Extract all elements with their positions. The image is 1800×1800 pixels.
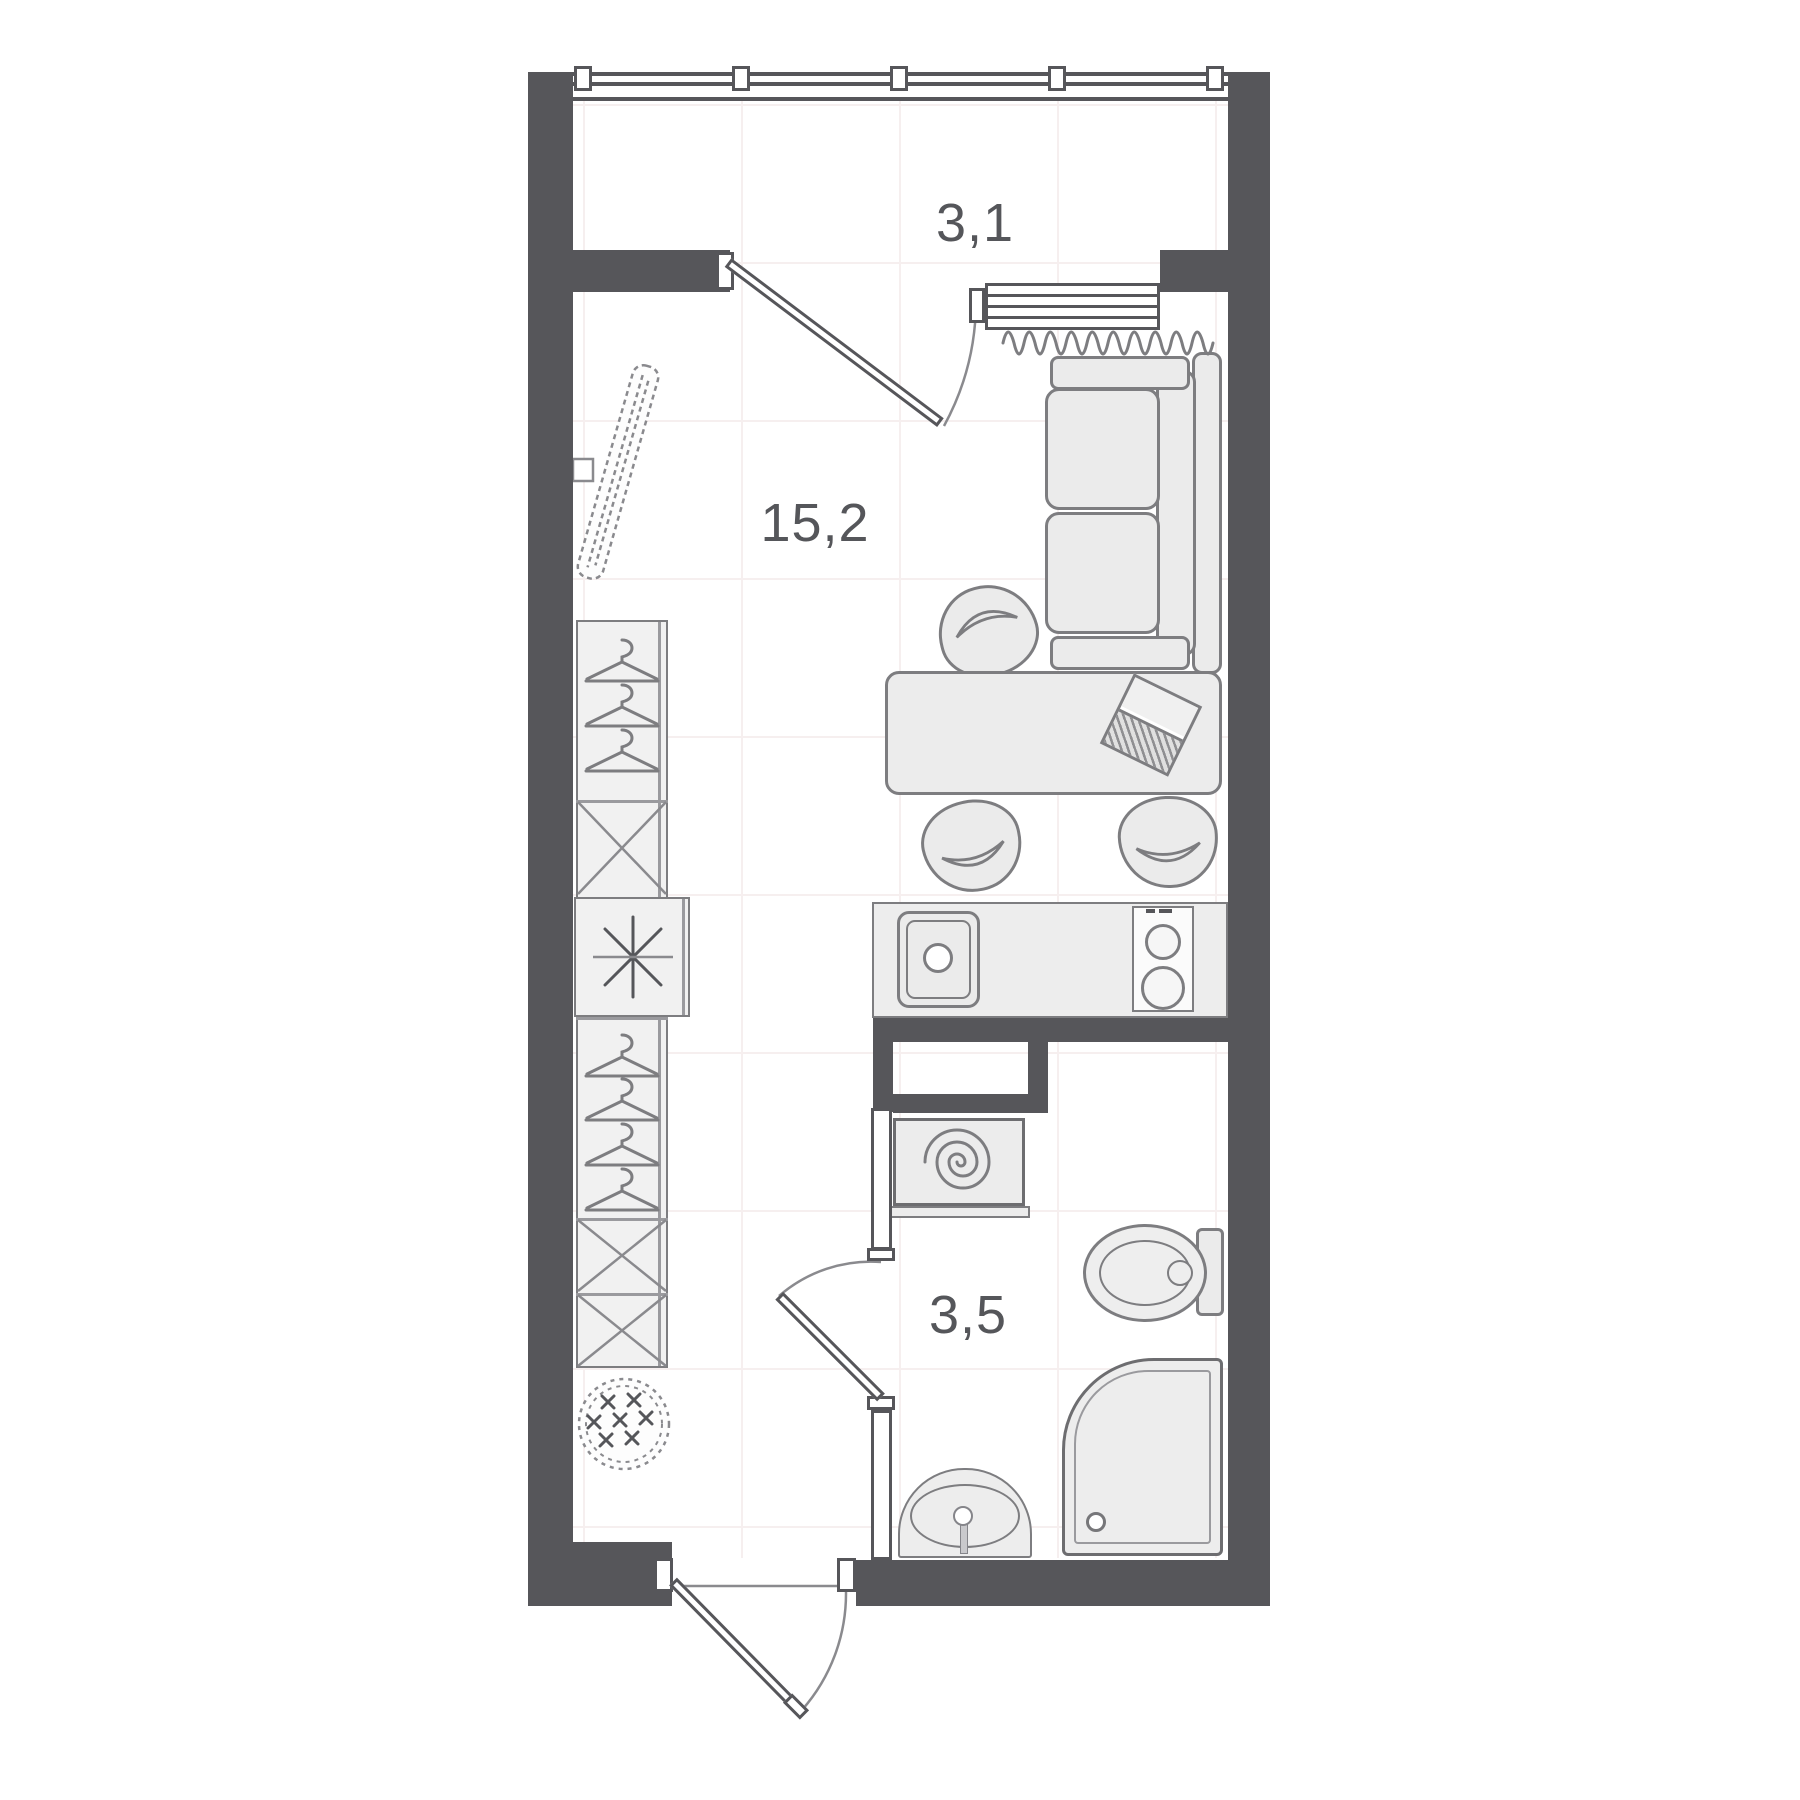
wardrobe-shelf-line [576,800,668,803]
window-glazing-line [988,294,1157,297]
sofa-seat-cushion [1045,512,1160,634]
window-band-line [573,72,1270,76]
wall-balcony-divider-left [573,250,730,292]
door-jamb-cap [867,1396,895,1410]
sofa-seat-cushion [1045,388,1160,510]
wardrobe-shelf-line [576,1017,668,1020]
fridge-icon [574,897,690,1017]
door-jamb-cap [867,1248,895,1261]
bathroom-partition-wall [871,1108,892,1250]
floor-plan: 3,1 15,2 3,5 [0,0,1800,1800]
sofa-armrest [1050,356,1190,390]
entry-door-end-cap [783,1693,809,1719]
window-band-line [573,82,1270,86]
bathroom-partition-wall [871,1410,892,1560]
stove-burner-icon [1145,924,1181,960]
sofa-armrest [1050,636,1190,670]
window-band-sill [573,97,1270,101]
wall-right [1228,72,1270,1606]
wall-shaft-riser [1028,1040,1048,1113]
shower-drain-icon [1086,1512,1106,1532]
sink-drain-icon [923,943,953,973]
entry-door-post [837,1558,856,1592]
area-label-balcony: 3,1 [900,192,1050,254]
washing-machine-panel [888,1206,1030,1218]
wall-bottom-left [528,1542,672,1606]
wall-balcony-divider-right [1160,250,1228,292]
wall-bathroom-west-top [873,1018,893,1112]
stove-control [1146,909,1155,913]
fridge-door-line [682,899,685,1015]
chair-icon [1116,794,1219,889]
wall-shaft-bottom [893,1094,1048,1113]
wall-bottom-right [856,1560,1270,1606]
wall-left [528,72,573,1606]
stove-burner-icon [1141,966,1185,1010]
entry-door-leaf [669,1578,804,1716]
window-mullion-icon [1206,66,1224,91]
toilet-flush [1167,1260,1193,1286]
window-mullion-icon [574,66,592,91]
washing-machine-icon [893,1118,1025,1206]
sofa-back-cushion [1156,370,1196,656]
chair-crease [1120,797,1217,886]
area-label-living-room: 15,2 [740,492,890,554]
wardrobe-shelf-line [576,1218,668,1221]
area-label-bathroom: 3,5 [893,1284,1043,1346]
window-mullion-icon [732,66,750,91]
balcony-window-icon [985,283,1160,330]
window-end-cap [969,288,985,323]
wardrobe-shelf-line [576,1293,668,1296]
window-mullion-icon [1048,66,1066,91]
sofa-back-frame [1192,352,1222,674]
window-glazing-line [988,305,1157,308]
window-mullion-icon [890,66,908,91]
entry-door-arc [802,1592,846,1710]
stove-control [1159,909,1172,913]
window-glazing-line [988,316,1157,319]
wall-bathroom-top [873,1018,1228,1042]
tap-icon [953,1506,973,1526]
